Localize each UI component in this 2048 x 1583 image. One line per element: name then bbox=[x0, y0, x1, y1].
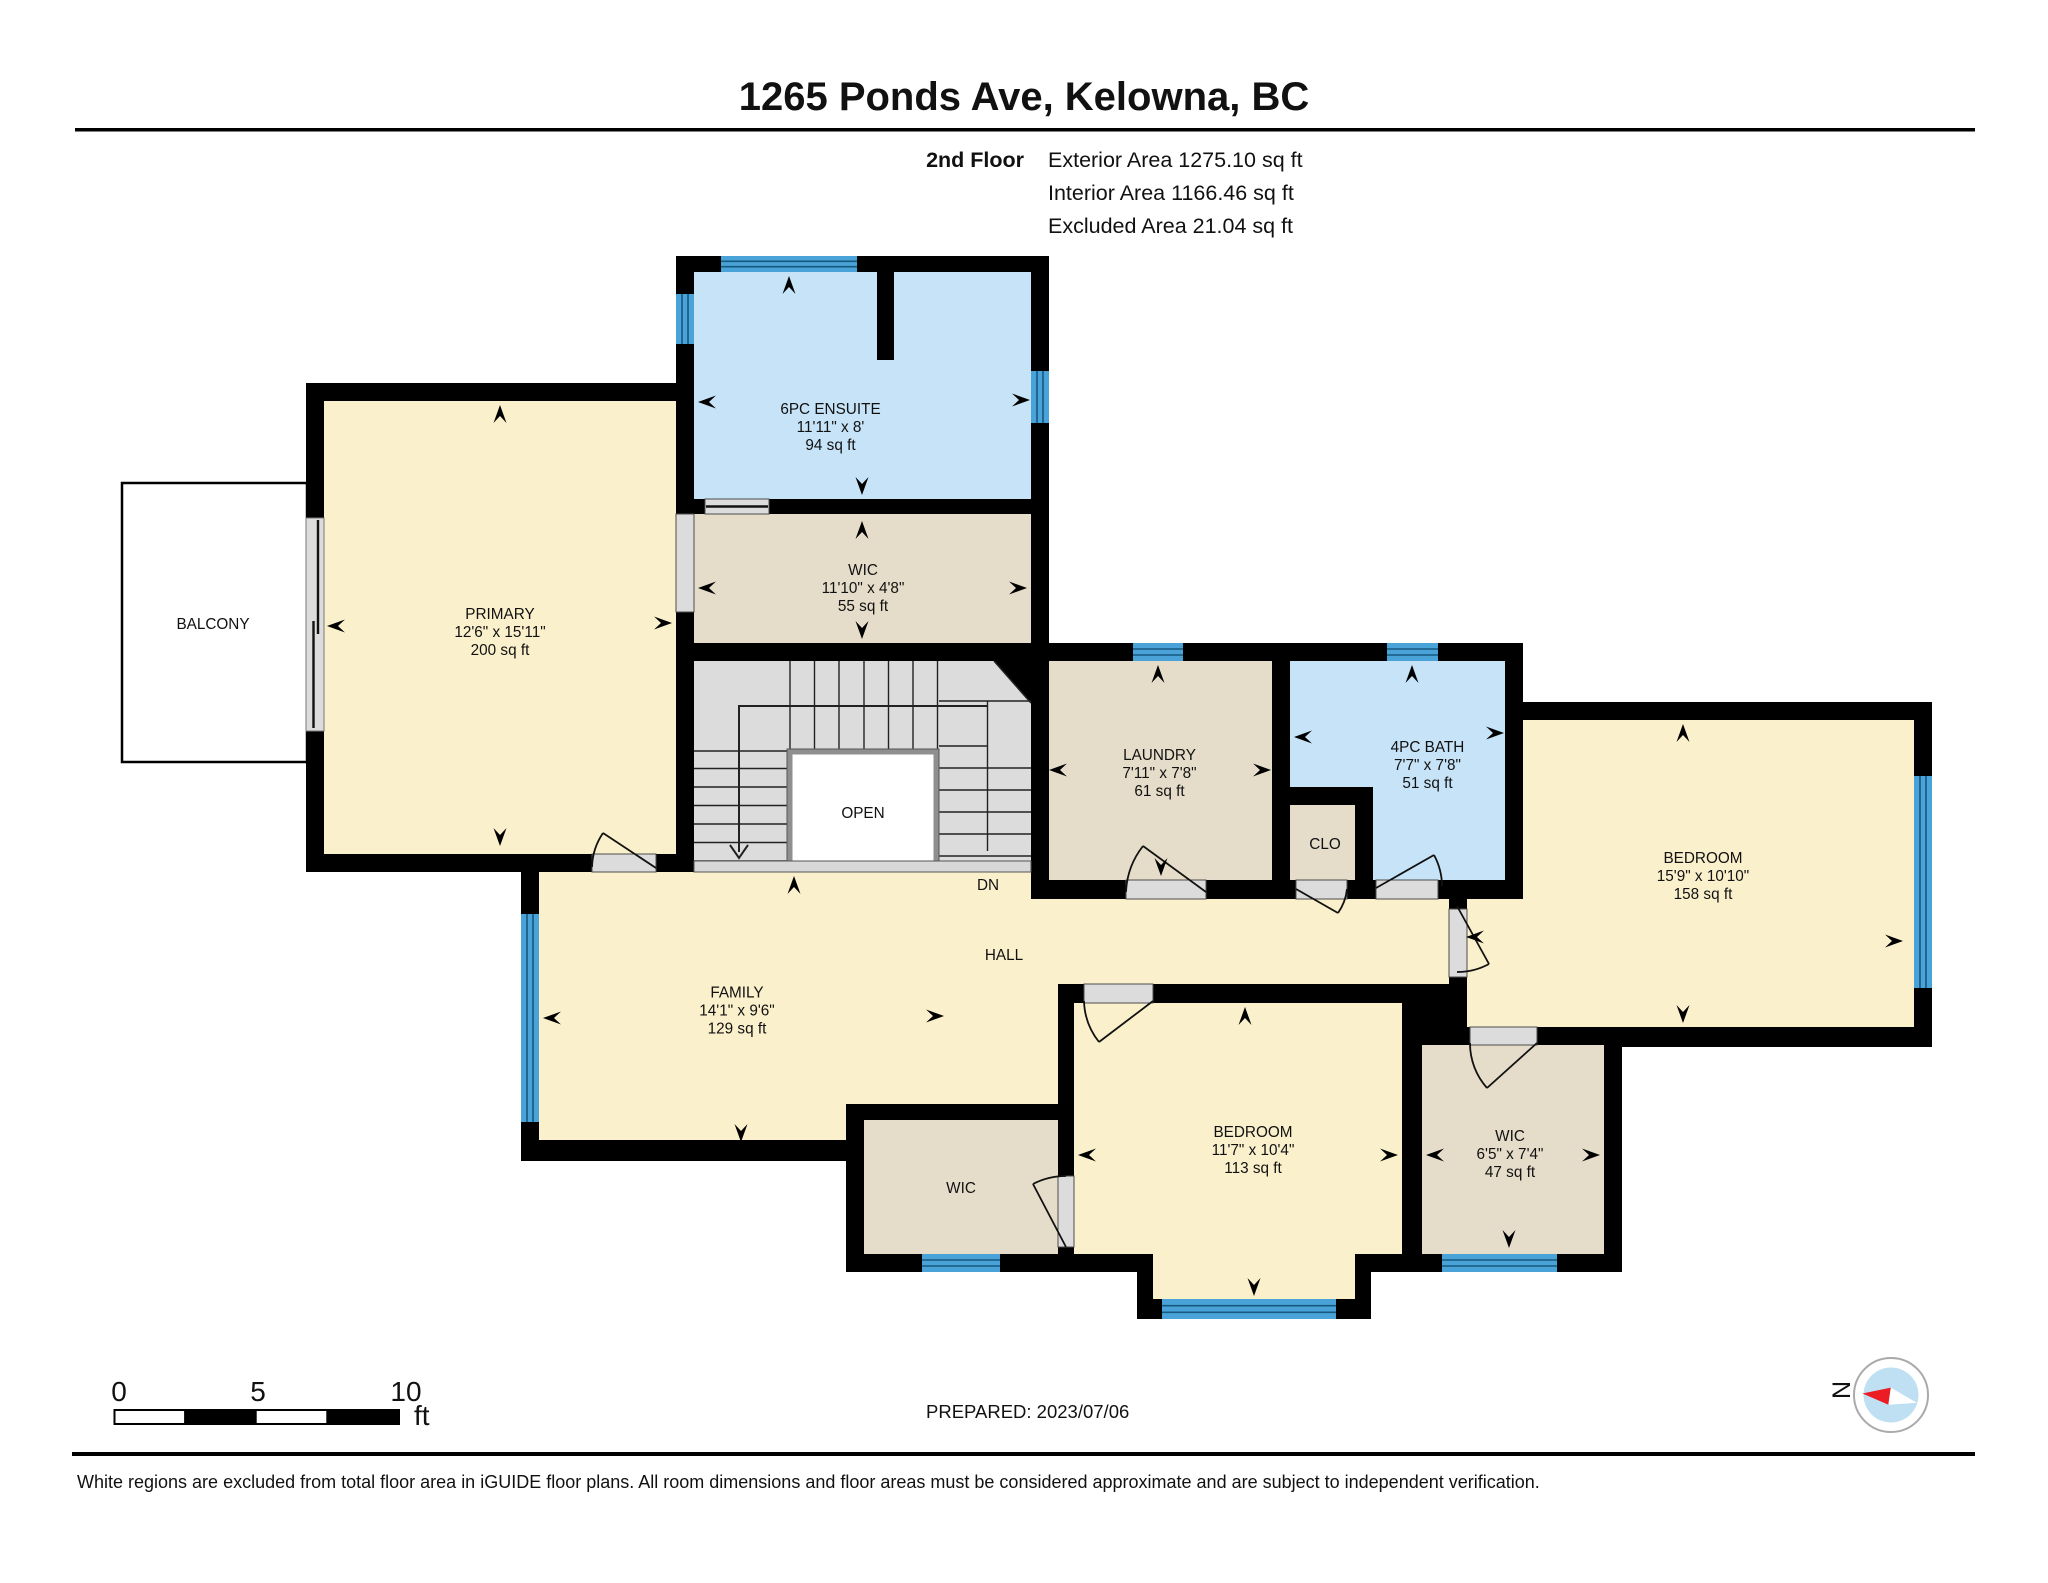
svg-text:White regions are excluded fro: White regions are excluded from total fl… bbox=[77, 1472, 1540, 1492]
svg-text:1265 Ponds Ave, Kelowna, BC: 1265 Ponds Ave, Kelowna, BC bbox=[739, 75, 1310, 119]
svg-text:ft: ft bbox=[414, 1400, 430, 1431]
svg-text:Excluded Area 21.04 sq ft: Excluded Area 21.04 sq ft bbox=[1048, 214, 1293, 238]
svg-text:DN: DN bbox=[977, 877, 999, 894]
svg-text:CLO: CLO bbox=[1309, 836, 1341, 853]
svg-text:Interior Area 1166.46 sq ft: Interior Area 1166.46 sq ft bbox=[1048, 181, 1294, 205]
svg-text:5: 5 bbox=[250, 1376, 266, 1407]
svg-text:2nd Floor: 2nd Floor bbox=[926, 148, 1025, 172]
svg-text:FAMILY14'1" x 9'6"129 sq ft: FAMILY14'1" x 9'6"129 sq ft bbox=[699, 985, 774, 1038]
svg-text:OPEN: OPEN bbox=[841, 805, 884, 822]
svg-text:0: 0 bbox=[111, 1376, 127, 1407]
svg-text:HALL: HALL bbox=[985, 947, 1023, 964]
svg-text:WIC: WIC bbox=[946, 1180, 976, 1197]
svg-text:PREPARED: 2023/07/06: PREPARED: 2023/07/06 bbox=[926, 1401, 1129, 1422]
svg-text:BALCONY: BALCONY bbox=[176, 616, 249, 633]
svg-text:N: N bbox=[1828, 1381, 1856, 1399]
svg-text:Exterior Area 1275.10 sq ft: Exterior Area 1275.10 sq ft bbox=[1048, 148, 1303, 172]
